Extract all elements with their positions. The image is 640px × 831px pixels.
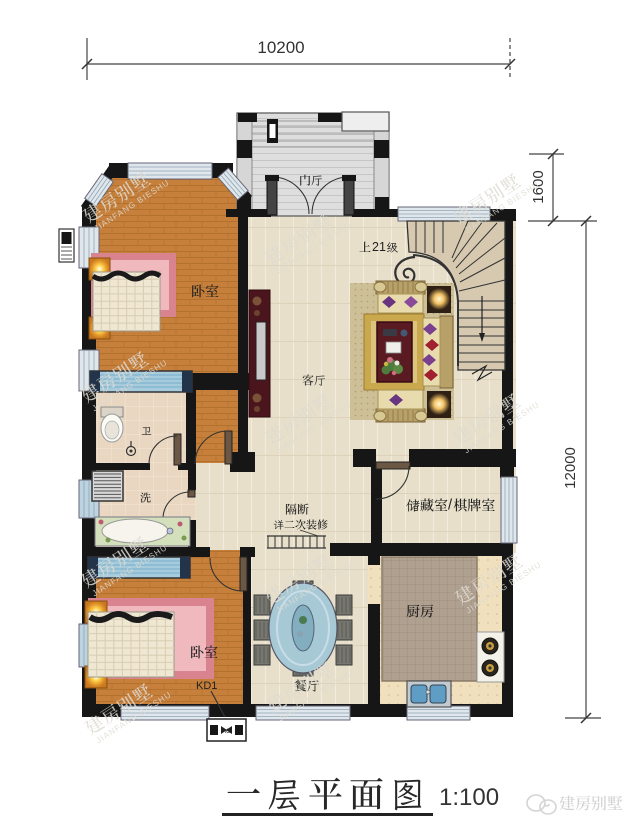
svg-text:1:100: 1:100 (439, 784, 499, 811)
svg-text:10200: 10200 (257, 38, 304, 57)
svg-text:12000: 12000 (562, 447, 579, 489)
svg-text:21: 21 (372, 240, 386, 254)
svg-text:KD1: KD1 (196, 680, 217, 692)
svg-text:AC: AC (222, 729, 231, 735)
